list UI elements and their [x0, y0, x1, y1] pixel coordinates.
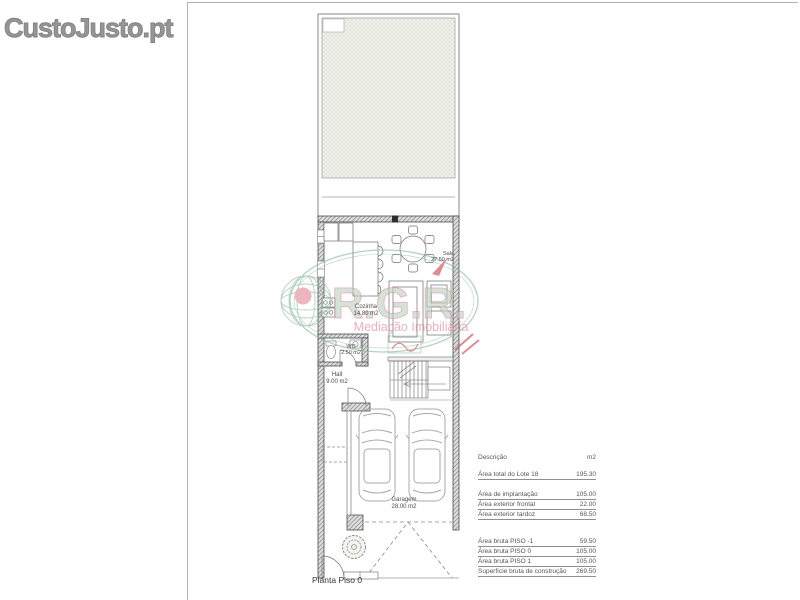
room-area: 14.80 m2	[350, 311, 382, 318]
table-row: Área bruta PISO 1 105.00	[478, 557, 596, 567]
room-label-sala: Sala 27.50 m2	[420, 251, 454, 263]
room-area: 27.50 m2	[420, 257, 454, 263]
door-pivot-block	[392, 216, 398, 223]
room-area: 2.50 m2	[340, 350, 362, 356]
car-2	[406, 409, 448, 501]
room-name: Garagem	[389, 497, 419, 504]
floor-plan-drawing: R.G.R. Mediação Imobiliária	[0, 0, 800, 600]
listing-image: CustoJusto.pt	[0, 0, 800, 600]
watermark-tagline: Mediação Imobiliária	[354, 320, 469, 334]
table-row: Área exterior frontal 22.00	[478, 500, 596, 510]
room-label-hall: Hall 9.00 m2	[325, 372, 349, 385]
table-row: Área de implantação 105.00	[478, 490, 596, 500]
room-area: 9.00 m2	[325, 379, 349, 386]
garage	[343, 409, 460, 579]
room-label-wc: WC 2.50 m2	[340, 344, 362, 356]
garden-area	[318, 14, 459, 217]
corridor	[322, 411, 351, 515]
room-area: 28.00 m2	[389, 504, 419, 511]
garage-door-dashes	[365, 522, 452, 578]
room-label-garagem: Garagem 28.00 m2	[389, 497, 419, 510]
room-label-cozinha: Cozinha 14.80 m2	[350, 304, 382, 317]
table-row: Área bruta PISO -1 59.50	[478, 537, 596, 547]
areas-table: Descrição m2 Área total do Lote 18 195.3…	[478, 454, 596, 577]
header-unit: m2	[587, 454, 596, 463]
dining-table	[392, 226, 434, 272]
table-row: Área total do Lote 18 195.30	[478, 470, 596, 480]
tree	[343, 536, 366, 559]
watermark-rgr: R.G.R. Mediação Imobiliária	[281, 250, 479, 354]
stairs	[388, 357, 453, 400]
car-1	[356, 409, 398, 501]
header-description: Descrição	[478, 454, 507, 463]
table-row: Área exterior tardoz 68.50	[478, 510, 596, 520]
table-row: Superfície bruta de construção 269.50	[478, 567, 596, 577]
areas-table-header: Descrição m2	[478, 454, 596, 463]
table-row: Área bruta PISO 0 105.00	[478, 547, 596, 557]
floor-plan-title: Planta Piso 0	[312, 575, 362, 585]
